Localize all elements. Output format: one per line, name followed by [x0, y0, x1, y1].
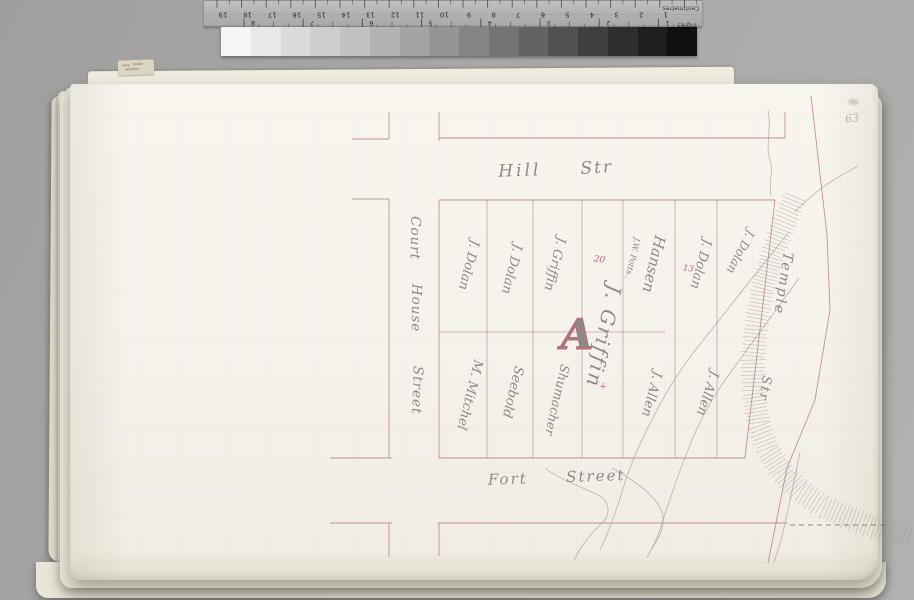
- hachure-band: [741, 193, 912, 547]
- grayscale-step: [608, 27, 638, 56]
- grayscale-step: [310, 27, 340, 56]
- contour-line: [647, 278, 799, 558]
- hachure-line: [756, 441, 776, 449]
- ruler-number-inch: 7: [310, 19, 314, 27]
- grayscale-step: [429, 27, 459, 56]
- hachure-line: [751, 294, 772, 298]
- street-label-hill: Hill: [497, 160, 542, 182]
- hachure-line: [833, 502, 843, 525]
- hachure-line: [753, 433, 773, 441]
- hachure-line: [878, 517, 884, 541]
- ruler-number-cm: 4: [589, 11, 594, 19]
- grayscale-wedge: [221, 27, 697, 56]
- hachure-line: [741, 367, 766, 368]
- ruler-number-cm: 6: [540, 11, 545, 19]
- hachure-line: [744, 348, 765, 350]
- grayscale-step: [519, 27, 549, 56]
- hachure-line: [808, 492, 819, 510]
- hachure-line: [838, 505, 846, 524]
- hachure-line: [743, 363, 764, 364]
- hachure-line: [765, 239, 788, 248]
- hachure-line: [823, 499, 831, 518]
- hachure-line: [755, 268, 779, 274]
- hachure-line: [751, 426, 771, 434]
- hachure-line: [746, 407, 767, 410]
- hachure-line: [860, 513, 867, 533]
- hachure-line: [784, 475, 802, 493]
- ruler-number-inch: 4: [488, 19, 492, 27]
- hachure-line: [853, 511, 860, 531]
- hachure-line: [750, 429, 773, 438]
- ruler-number-cm: 7: [516, 11, 520, 19]
- lot-label-hansen: Hansen: [639, 233, 670, 294]
- lot-label-j-allen: J. Allen: [693, 366, 722, 417]
- hachure-line: [745, 333, 766, 335]
- lot-label-jw-potts: J.W. Potts..: [623, 235, 642, 280]
- ruler-number-cm: 8: [491, 11, 495, 19]
- street-label-hill: Str: [580, 157, 614, 179]
- grayscale-step: [578, 27, 608, 56]
- hachure-line: [747, 317, 768, 321]
- ruler-number-inch: 2: [606, 19, 610, 27]
- hachure-line: [782, 200, 801, 208]
- ruler-number-cm: 16: [292, 11, 301, 19]
- lot-label-j-allen: J. Allen: [638, 367, 665, 418]
- ruler-number-inch: 5: [429, 19, 433, 27]
- hachure-line: [743, 329, 768, 331]
- lot-label-j-dolan: J. Dolan: [687, 234, 715, 290]
- lot-labels: J. Dolan J. Dolan J. Griffin J. Griffin …: [453, 225, 758, 438]
- grayscale-step: [281, 27, 311, 56]
- street-label-temple: Temple: [770, 251, 796, 316]
- lot-label-j-griffin: J. Griffin: [540, 232, 569, 292]
- hachure-line: [773, 218, 796, 228]
- map-svg: Hill Str Fort Street Court House Street …: [0, 0, 914, 600]
- hachure-line: [819, 496, 829, 519]
- hachure-line: [747, 305, 772, 309]
- hachure-line: [773, 222, 793, 229]
- hachure-line: [771, 229, 791, 236]
- ruler-number-cm: 14: [341, 11, 350, 19]
- hachure-line: [901, 523, 908, 547]
- hachure-line: [746, 312, 771, 316]
- hachure-line: [770, 225, 793, 234]
- hachure-line: [867, 516, 874, 536]
- lot-label-j-dolan-slope: J. Dolan: [724, 225, 759, 276]
- hachure-line: [893, 521, 899, 545]
- grayscale-step: [221, 27, 251, 56]
- ruler-number-cm: 15: [317, 11, 326, 19]
- hachure-line: [743, 403, 768, 407]
- hachure-line: [756, 444, 779, 453]
- hachure-line: [855, 510, 863, 534]
- hachure-line: [752, 282, 776, 288]
- ruler-number-cm: 13: [366, 11, 375, 19]
- grayscale-step: [489, 27, 519, 56]
- hachure-line: [768, 459, 786, 470]
- ruler-number-cm: 10: [440, 11, 449, 19]
- ruler-number-inch: 3: [547, 19, 551, 27]
- grayscale-step: [667, 27, 697, 56]
- hachure-line: [743, 371, 764, 372]
- ruler-number-cm: 19: [219, 11, 228, 19]
- landmark-letter-a: A: [557, 310, 594, 359]
- hachure-line: [747, 422, 770, 431]
- grayscale-step: [251, 27, 281, 56]
- hachure-line: [830, 502, 838, 521]
- hachure-line: [871, 515, 877, 539]
- hachure-line: [848, 508, 856, 532]
- ruler-number-cm: 11: [415, 11, 424, 19]
- hachure-line: [744, 410, 769, 414]
- ruler-number-cm: 3: [614, 11, 618, 19]
- ruler-number-cm: 17: [268, 11, 277, 19]
- hachure-line: [906, 527, 912, 547]
- hachure-line: [746, 325, 767, 327]
- street-label-court-house: House: [408, 283, 425, 333]
- grayscale-step: [638, 27, 668, 56]
- ruler-scale-svg: 1918171615141312111098765432187654321Cen…: [204, 0, 702, 27]
- photo-scan: 63: [0, 0, 914, 600]
- ruler-number-cm: 5: [565, 11, 569, 19]
- temple-street-line: [768, 96, 830, 563]
- hachure-line: [840, 505, 850, 528]
- hachure-line: [802, 487, 813, 505]
- lot-number-20: 20: [592, 254, 606, 266]
- ruler-number-cm: 12: [391, 11, 400, 19]
- hachure-line: [785, 193, 804, 201]
- hachure-line: [750, 302, 771, 306]
- street-label-court-house: Court: [407, 216, 424, 260]
- hachure-line: [741, 360, 766, 361]
- contour-line: [768, 110, 771, 196]
- hachure-line: [886, 519, 892, 543]
- ruler-label-centimetres: Centimetres: [663, 5, 700, 12]
- hachure-line: [863, 513, 871, 537]
- lot-label-j-dolan: J. Dolan: [498, 239, 526, 295]
- street-label-fort: Fort: [487, 469, 528, 488]
- grayscale-step: [400, 27, 430, 56]
- lot-label-m-mitchel: M. Mitchel: [453, 357, 485, 431]
- street-label-fort: Street: [566, 466, 626, 486]
- ruler-number-inch: 8: [251, 19, 255, 27]
- survey-cross-mark: +: [599, 382, 607, 392]
- hachure-line: [774, 465, 792, 483]
- hachure-line: [826, 499, 836, 522]
- lot-number-13: 13: [682, 263, 694, 274]
- hachure-line: [742, 344, 767, 346]
- ruler-number-cm: 18: [243, 11, 252, 19]
- ruler-number-inch: 6: [369, 19, 373, 27]
- street-label-court-house: Street: [408, 366, 426, 415]
- calibration-ruler: 1918171615141312111098765432187654321Cen…: [204, 0, 702, 27]
- hachure-line: [744, 320, 769, 324]
- hachure-line: [748, 297, 773, 301]
- hachure-line: [764, 453, 782, 464]
- hachure-line: [744, 340, 765, 342]
- grayscale-step: [340, 27, 370, 56]
- lot-label-shumacher: Shumacher: [542, 363, 573, 438]
- hachure-line: [743, 355, 764, 357]
- lot-label-j-dolan: J. Dolan: [455, 235, 483, 291]
- hachure-line: [748, 309, 769, 313]
- ruler-number-cm: 2: [639, 11, 643, 19]
- hachure-line: [776, 215, 795, 223]
- ruler-number-inch: 1: [665, 19, 669, 27]
- hachure-line: [753, 436, 776, 445]
- lot-label-seebold: Seebold: [499, 364, 526, 419]
- grayscale-step: [548, 27, 578, 56]
- ruler-number-cm: 9: [467, 11, 471, 19]
- hachure-line: [782, 196, 805, 206]
- grayscale-step: [370, 27, 400, 56]
- grayscale-step: [459, 27, 489, 56]
